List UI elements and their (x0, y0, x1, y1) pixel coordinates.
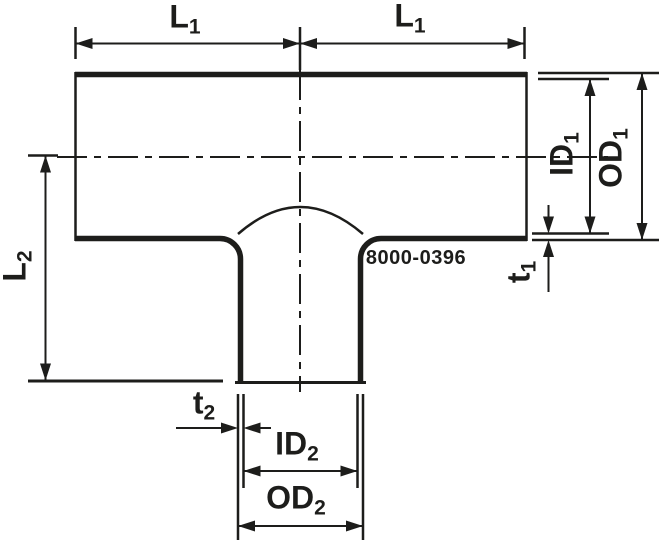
dim-label-l1-left: L1 (169, 1, 200, 38)
dimension-od1 (637, 73, 648, 240)
dim-label-od1-base: OD (593, 140, 629, 188)
dimension-t2 (176, 423, 271, 434)
dim-label-t1-base: t (501, 273, 537, 284)
dim-label-id2: ID2 (275, 428, 319, 465)
part-number-label: 8000-0396 (366, 248, 466, 268)
dim-label-t2: t2 (193, 387, 215, 424)
dimension-l2 (28, 156, 223, 382)
dim-label-od2-base: OD (266, 480, 314, 516)
dimension-t1 (543, 205, 554, 292)
dimension-od2 (238, 521, 363, 532)
dim-label-l1-right-sub: 1 (414, 15, 426, 38)
dim-label-od1: OD1 (595, 128, 632, 188)
dim-label-id2-base: ID (275, 426, 307, 462)
tee-fitting-drawing (0, 0, 659, 542)
dim-label-id1-sub: 1 (561, 132, 584, 144)
dim-label-l1-left-sub: 1 (189, 16, 201, 39)
dim-label-od2-sub: 2 (314, 497, 326, 520)
dim-label-t2-base: t (193, 385, 204, 421)
dim-label-t2-sub: 2 (203, 402, 215, 425)
dim-label-l1-left-base: L (169, 0, 189, 35)
dimension-id2 (244, 466, 358, 477)
dim-label-l2-sub: 2 (14, 250, 37, 262)
dim-label-id1: ID1 (546, 132, 583, 176)
dim-label-l2: L2 (0, 250, 36, 281)
dim-label-l1-right: L1 (394, 0, 425, 37)
dim-label-id1-base: ID (544, 144, 580, 176)
dim-label-l1-right-base: L (394, 0, 414, 34)
technical-drawing-canvas: L1 L1 L2 ID1 OD1 t1 t2 ID2 OD2 8000-0396 (0, 0, 659, 542)
dim-label-od1-sub: 1 (610, 128, 633, 140)
dimension-l1 (76, 27, 525, 70)
dim-label-l2-base: L (0, 262, 33, 282)
dim-label-od2: OD2 (266, 482, 326, 519)
dim-label-id2-sub: 2 (307, 443, 319, 466)
dim-label-t1: t1 (503, 261, 540, 283)
dim-label-t1-sub: 1 (518, 261, 541, 273)
